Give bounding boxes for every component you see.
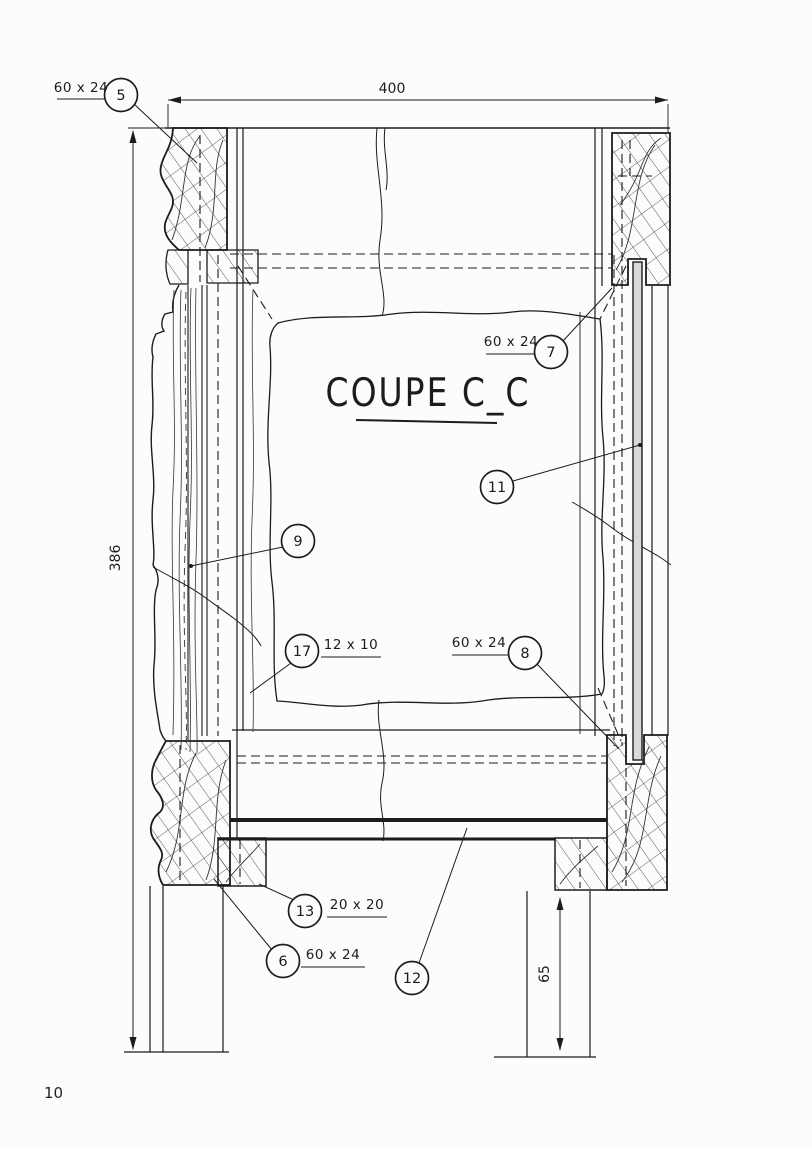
- callout-6-number: 6: [278, 954, 287, 970]
- callout-13: 13 20 x 20: [259, 884, 387, 928]
- back-rod-section: [633, 262, 642, 760]
- callout-5-number: 5: [116, 88, 125, 104]
- left-moulding-profile: [151, 285, 197, 753]
- callout-8: 8 60 x 24: [452, 635, 619, 749]
- dimension-top-width: 400: [168, 81, 668, 132]
- panel-outline: [153, 128, 671, 841]
- title-underline: [356, 420, 497, 423]
- callout-6: 6 60 x 24: [214, 879, 365, 978]
- callout-17: 17 12 x 10: [250, 635, 381, 694]
- callout-13-number: 13: [296, 904, 314, 920]
- callout-7-label: 60 x 24: [484, 334, 538, 350]
- callout-8-label: 60 x 24: [452, 635, 506, 651]
- dim-top-width-value: 400: [379, 81, 406, 97]
- callout-12: 12: [396, 828, 468, 995]
- callout-8-number: 8: [520, 646, 529, 662]
- callout-9-number: 9: [293, 534, 302, 550]
- hidden-lines: [180, 135, 652, 888]
- bottom-right-rail-section: [555, 735, 667, 890]
- callout-5-label: 60 x 24: [54, 80, 108, 96]
- dim-left-height-value: 386: [108, 545, 124, 572]
- frame-lines: [124, 128, 670, 1057]
- callout-11-number: 11: [488, 480, 506, 496]
- title-text: COUPE C_C: [326, 370, 531, 415]
- bottom-boards: [218, 820, 607, 839]
- dim-right-bottom-height-value: 65: [537, 965, 553, 983]
- callout-7: 7 60 x 24: [484, 288, 612, 369]
- dimension-right-bottom-height: 65: [537, 897, 564, 1051]
- callout-7-number: 7: [546, 345, 555, 361]
- callout-6-label: 60 x 24: [306, 947, 360, 963]
- scanned-drawing-page: 400 386 65 5 60 x 24 7 60 x 24 11: [0, 0, 812, 1150]
- callout-13-label: 20 x 20: [330, 897, 384, 913]
- callout-12-number: 12: [403, 971, 421, 987]
- callout-17-label: 12 x 10: [324, 637, 378, 653]
- page-number: 10: [44, 1084, 63, 1102]
- section-drawing: 400 386 65 5 60 x 24 7 60 x 24 11: [0, 0, 812, 1150]
- callout-17-number: 17: [293, 644, 311, 660]
- callout-11: 11: [481, 443, 643, 504]
- drawing-title: COUPE C_C: [326, 370, 531, 423]
- bottom-left-rail-section: [151, 741, 266, 886]
